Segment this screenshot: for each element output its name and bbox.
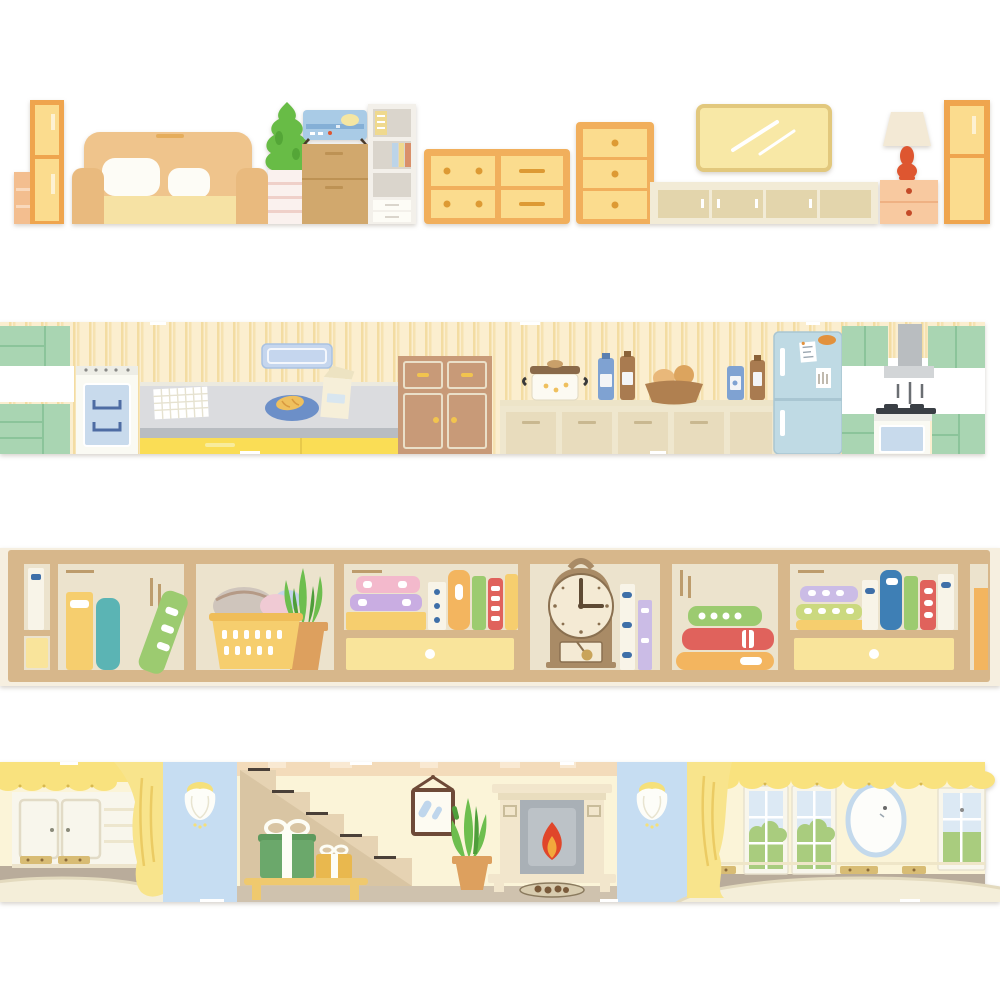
fireplace [488, 784, 616, 897]
drawer-cabinet [302, 138, 368, 224]
washi-tape-product-image [0, 0, 1000, 1000]
green-upper-cabinet [0, 326, 70, 366]
window-right [792, 786, 836, 874]
strip-parlor [0, 762, 1000, 902]
checkered-cloth [153, 387, 208, 420]
compartment-stacked-books [342, 564, 520, 670]
hutch-cabinet [398, 356, 492, 454]
kitchen-right [842, 324, 985, 454]
tall-cabinet [30, 100, 64, 224]
wall-tv [698, 106, 830, 170]
bookcase [368, 104, 416, 224]
backsplash-left [0, 366, 74, 402]
table-lamp [883, 112, 931, 180]
tv-stand [650, 182, 878, 224]
sconce-panel-2 [617, 762, 687, 902]
window-partial [938, 788, 985, 870]
stove-oven [76, 366, 138, 454]
strip-living-room [0, 96, 1000, 226]
green-lower-cabinet [0, 404, 70, 454]
laundry-basket [209, 613, 303, 669]
wall-board [262, 344, 332, 368]
compartment-basket-plant [196, 564, 334, 670]
tall-chest [576, 122, 654, 224]
compartment-white-book [22, 564, 52, 670]
sconce-panel [163, 762, 237, 902]
closet-section [0, 762, 182, 902]
compartment-horizontal-stack [672, 564, 778, 670]
refrigerator [774, 332, 842, 454]
radio [303, 110, 367, 140]
nightstand [880, 180, 938, 224]
oval-mirror [848, 785, 904, 855]
compartment-partial [970, 564, 988, 670]
compartment-standing-books [58, 564, 190, 676]
strip-bookshelf [0, 548, 1000, 686]
compartment-clock [530, 561, 660, 670]
double-dresser [424, 149, 570, 224]
counter-cabinets [500, 400, 775, 454]
strip-kitchen [0, 322, 1000, 454]
grand-room [672, 762, 1000, 902]
white-wardrobe [12, 792, 152, 868]
compartment-book-collection [788, 564, 960, 670]
window-left [744, 786, 788, 874]
tall-cabinet-right [944, 100, 990, 224]
sofa [72, 132, 268, 224]
